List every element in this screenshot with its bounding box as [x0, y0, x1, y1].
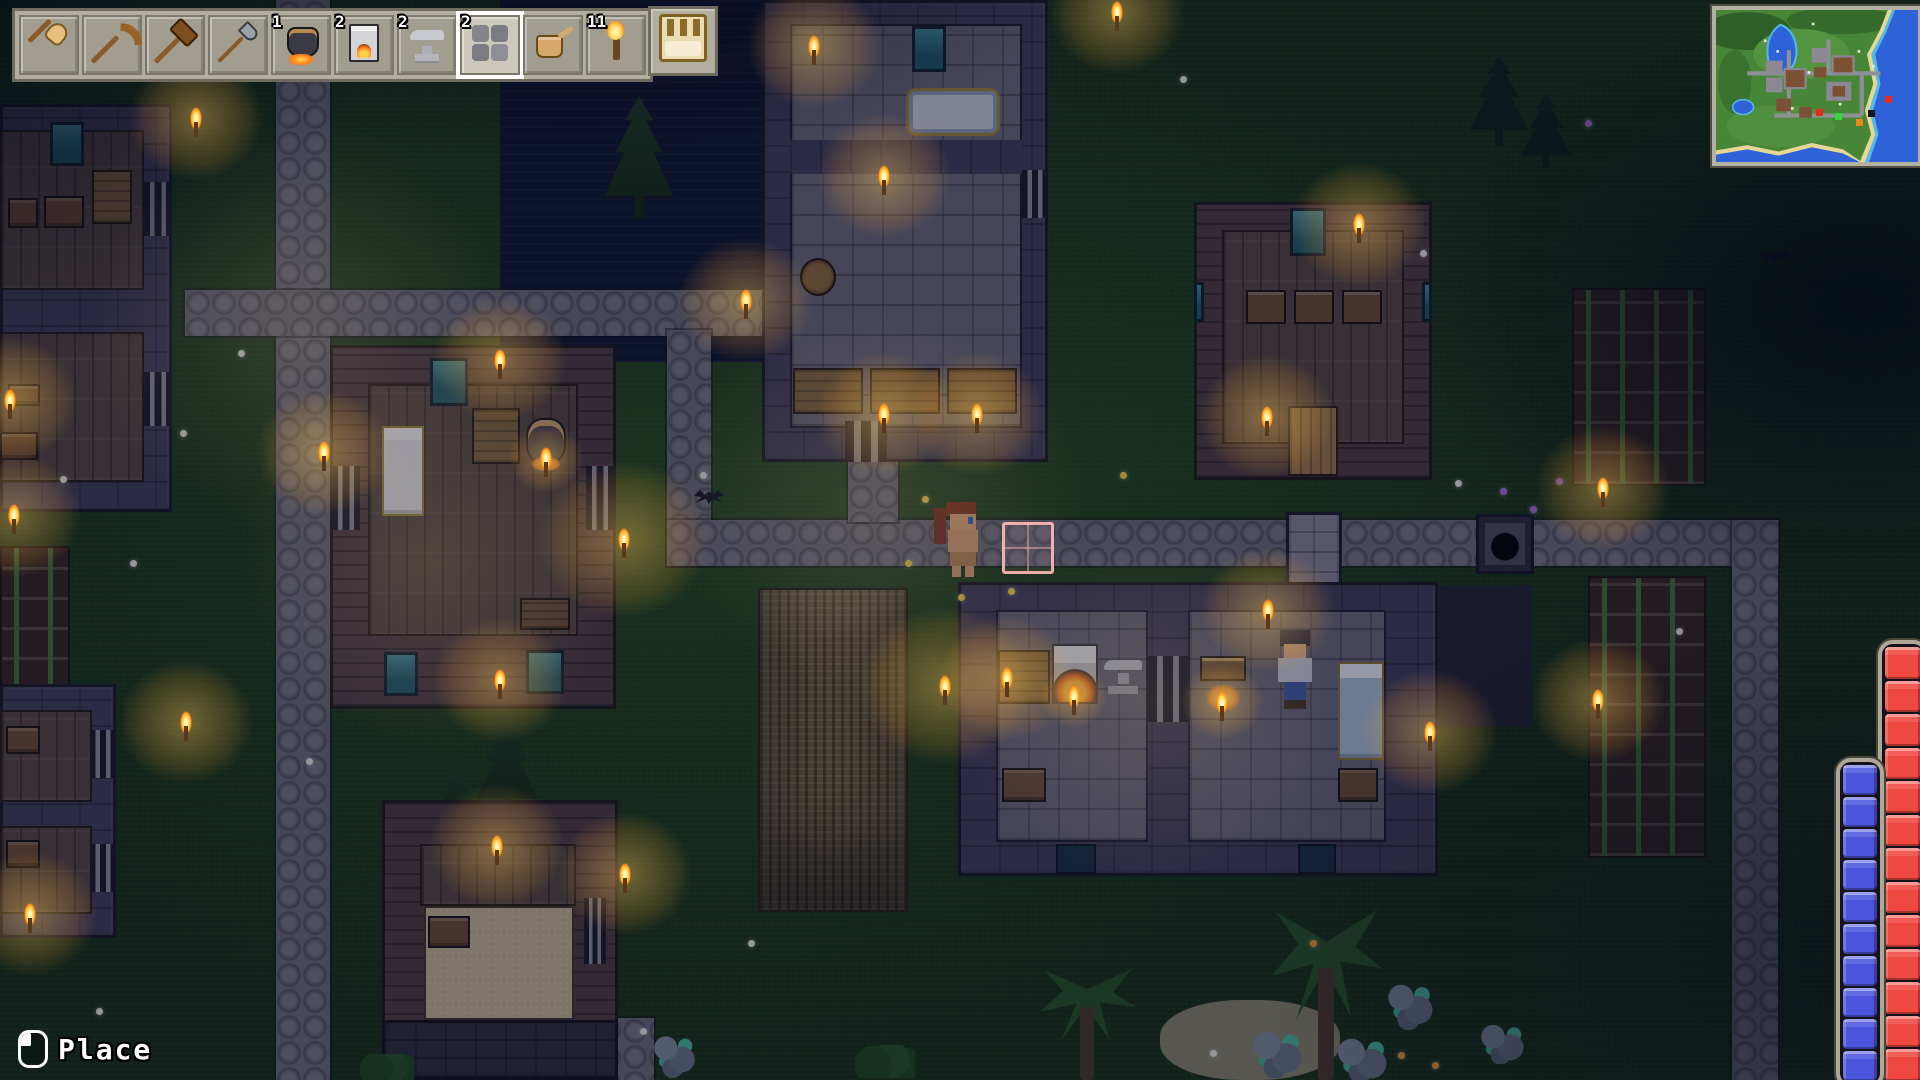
- door[interactable]: [90, 844, 116, 892]
- health-bar: [1878, 640, 1920, 1080]
- mana-bar: [1836, 758, 1884, 1080]
- game-viewport[interactable]: 122211: [0, 0, 1920, 1080]
- flower: [1556, 478, 1563, 485]
- torch-flame: [617, 861, 633, 887]
- flower: [180, 430, 187, 437]
- stone-path-main: [667, 520, 1779, 566]
- flower: [1676, 628, 1683, 635]
- manabar-segment: [1843, 765, 1877, 795]
- flower: [922, 496, 929, 503]
- player-eye: [968, 517, 973, 524]
- manabar-segment: [1843, 829, 1877, 859]
- cauldron[interactable]: [526, 418, 566, 464]
- anvil[interactable]: [1102, 656, 1144, 696]
- watering-can-icon: [531, 21, 575, 65]
- bush: [855, 1045, 915, 1078]
- door[interactable]: [144, 372, 172, 426]
- table[interactable]: [947, 368, 1017, 414]
- flower: [640, 1028, 647, 1035]
- manabar-segment: [1843, 1019, 1877, 1049]
- action-hint: Place: [18, 1030, 152, 1068]
- item-count: 11: [587, 12, 606, 31]
- floor-wood: [0, 710, 92, 802]
- flower: [958, 594, 965, 601]
- door[interactable]: [1148, 656, 1188, 722]
- chest[interactable]: [8, 198, 38, 228]
- manabar-segment: [1843, 1051, 1877, 1080]
- minimap-markers: [1716, 10, 1918, 162]
- chest[interactable]: [1002, 768, 1046, 802]
- stone-path-east: [1732, 520, 1778, 1080]
- bag-icon: [659, 14, 707, 62]
- minimap[interactable]: [1712, 6, 1920, 166]
- healthbar-segment: [1885, 949, 1920, 981]
- flower: [700, 472, 707, 479]
- flower: [1310, 940, 1317, 947]
- hotbar-slot-stone[interactable]: 2: [460, 15, 520, 75]
- map-marker: [1835, 113, 1842, 120]
- hotbar: 122211: [12, 8, 653, 82]
- window: [1422, 282, 1432, 322]
- table[interactable]: [870, 368, 940, 414]
- window-dark: [1056, 844, 1096, 874]
- player-leg: [952, 566, 961, 577]
- npc-boots: [1284, 700, 1306, 709]
- bush: [360, 1054, 414, 1080]
- campfire[interactable]: [1200, 656, 1246, 710]
- hotbar-slot-watering-can[interactable]: [523, 15, 583, 75]
- furnace-icon: [342, 21, 386, 65]
- window: [1194, 282, 1204, 322]
- healthbar-segment: [1885, 848, 1920, 880]
- flower: [1432, 1062, 1439, 1069]
- tealrock: [652, 1032, 698, 1078]
- chest[interactable]: [6, 726, 40, 754]
- flower: [1398, 1052, 1405, 1059]
- cellar-entrance[interactable]: [1476, 514, 1534, 574]
- window: [50, 122, 84, 166]
- player-leg: [965, 566, 974, 577]
- stone-icon: [468, 21, 512, 65]
- flower: [60, 476, 67, 483]
- healthbar-segment: [1885, 982, 1920, 1014]
- pine-dark: [1466, 56, 1532, 146]
- manabar-segment: [1843, 892, 1877, 922]
- healthbar-segment: [1885, 882, 1920, 914]
- furnace[interactable]: [1052, 644, 1098, 704]
- door[interactable]: [586, 466, 614, 530]
- window: [912, 26, 946, 72]
- door[interactable]: [332, 466, 360, 530]
- pine-dark: [1518, 94, 1574, 168]
- item-count: 2: [398, 12, 408, 31]
- torch-light-glow: [96, 639, 276, 805]
- flower: [96, 1008, 103, 1015]
- pickaxe-icon: [90, 21, 134, 65]
- left-mouse-button-icon: [18, 1030, 48, 1068]
- window: [526, 650, 564, 694]
- hotbar-slot-pickaxe[interactable]: [82, 15, 142, 75]
- item-count: 2: [335, 12, 345, 31]
- window-dark: [1298, 844, 1336, 874]
- hammer-icon: [153, 21, 197, 65]
- flower: [1500, 488, 1507, 495]
- dresser[interactable]: [1294, 290, 1334, 324]
- npc-shirt: [1278, 658, 1312, 682]
- player-ponytail: [934, 508, 946, 544]
- tealrock: [1334, 1036, 1392, 1080]
- flower: [905, 560, 912, 567]
- manabar-segment: [1843, 988, 1877, 1018]
- healthbar-segment: [1885, 915, 1920, 947]
- npc-pants: [1284, 682, 1306, 702]
- tealrock: [1386, 980, 1436, 1030]
- door[interactable]: [90, 730, 116, 778]
- table[interactable]: [793, 368, 863, 414]
- player-body: [948, 530, 978, 552]
- healthbar-segment: [1885, 681, 1920, 713]
- corn-field-east-upper: [1572, 288, 1706, 486]
- action-hint-label: Place: [58, 1033, 152, 1066]
- door[interactable]: [845, 421, 887, 462]
- hotbar-slot-shovel[interactable]: [19, 15, 79, 75]
- palm-tree: [1040, 962, 1136, 1080]
- door[interactable]: [144, 182, 172, 236]
- table[interactable]: [92, 170, 132, 224]
- door[interactable]: [584, 898, 606, 964]
- cauldron-icon: [279, 21, 323, 65]
- flower: [130, 560, 137, 567]
- manabar-segment: [1843, 956, 1877, 986]
- map-marker: [1856, 119, 1863, 126]
- item-count: 1: [272, 12, 282, 31]
- hotbar-slot-furnace[interactable]: 2: [334, 15, 394, 75]
- hotbar-slot-anvil[interactable]: 2: [397, 15, 457, 75]
- flower: [748, 940, 755, 947]
- hotbar-slot-torch[interactable]: 11: [586, 15, 646, 75]
- healthbar-segment: [1885, 748, 1920, 780]
- map-marker: [1885, 96, 1892, 103]
- table[interactable]: [998, 650, 1050, 704]
- flower: [1120, 472, 1127, 479]
- healthbar-segment: [1885, 1049, 1920, 1080]
- corn-field-east-lower: [1588, 576, 1706, 858]
- door-wood[interactable]: [1288, 406, 1338, 476]
- axe-icon: [216, 21, 260, 65]
- chest[interactable]: [44, 196, 84, 228]
- barrel[interactable]: [800, 258, 836, 296]
- chest[interactable]: [6, 840, 40, 868]
- tealrock: [1478, 1022, 1528, 1064]
- inner-wall: [790, 140, 1022, 174]
- window: [1290, 208, 1326, 256]
- wheat-field: [758, 588, 908, 912]
- bed-blue[interactable]: [1338, 662, 1384, 760]
- player-shorts: [950, 552, 976, 566]
- flower: [1585, 120, 1592, 127]
- door[interactable]: [1022, 170, 1048, 218]
- dresser[interactable]: [1246, 290, 1286, 324]
- flower: [1180, 76, 1187, 83]
- bag-slot[interactable]: [648, 6, 718, 76]
- healthbar-segment: [1885, 815, 1920, 847]
- placement-cursor[interactable]: [1002, 522, 1054, 574]
- anvil-icon: [405, 21, 449, 65]
- torch-flame: [1109, 0, 1125, 25]
- bat: [1758, 248, 1792, 266]
- map-marker: [1816, 109, 1823, 116]
- floor-wood: [420, 844, 576, 906]
- window: [384, 652, 418, 696]
- npc-face: [1284, 644, 1306, 658]
- tealrock: [1250, 1028, 1306, 1078]
- map-marker: [1868, 110, 1875, 117]
- flower: [1008, 588, 1015, 595]
- hotbar-slot-axe[interactable]: [208, 15, 268, 75]
- table[interactable]: [472, 408, 520, 464]
- healthbar-segment: [1885, 1016, 1920, 1048]
- crate[interactable]: [520, 598, 570, 630]
- dresser[interactable]: [1342, 290, 1382, 324]
- bed[interactable]: [382, 426, 424, 516]
- manabar-segment: [1843, 924, 1877, 954]
- tub[interactable]: [906, 88, 1000, 136]
- torch-flame: [616, 526, 632, 552]
- hotbar-slot-cauldron[interactable]: 1: [271, 15, 331, 75]
- shovel-icon: [27, 21, 71, 65]
- world-layer: [0, 0, 1920, 1080]
- chest[interactable]: [428, 916, 470, 948]
- torch-flame: [937, 673, 953, 699]
- healthbar-segment: [1885, 647, 1920, 679]
- flower: [1530, 506, 1537, 513]
- chest[interactable]: [0, 432, 38, 460]
- stone-path-west: [276, 0, 330, 1080]
- item-count: 2: [461, 12, 471, 31]
- flower: [306, 758, 313, 765]
- healthbar-segment: [1885, 714, 1920, 746]
- dark-annex: [1436, 585, 1532, 727]
- chest[interactable]: [1338, 768, 1378, 802]
- flower: [1455, 480, 1462, 487]
- manabar-segment: [1843, 797, 1877, 827]
- flower: [1210, 1050, 1217, 1057]
- wall-dark: [382, 1020, 618, 1080]
- corn-field-west: [0, 546, 70, 692]
- window: [430, 358, 468, 406]
- torch-flame: [188, 105, 204, 131]
- hotbar-slot-hammer[interactable]: [145, 15, 205, 75]
- healthbar-segment: [1885, 781, 1920, 813]
- flower: [238, 350, 245, 357]
- chest[interactable]: [8, 384, 40, 406]
- stone-path-door-stub: [848, 458, 898, 522]
- torch-flame: [178, 709, 194, 735]
- manabar-segment: [1843, 860, 1877, 890]
- flower: [1420, 250, 1427, 257]
